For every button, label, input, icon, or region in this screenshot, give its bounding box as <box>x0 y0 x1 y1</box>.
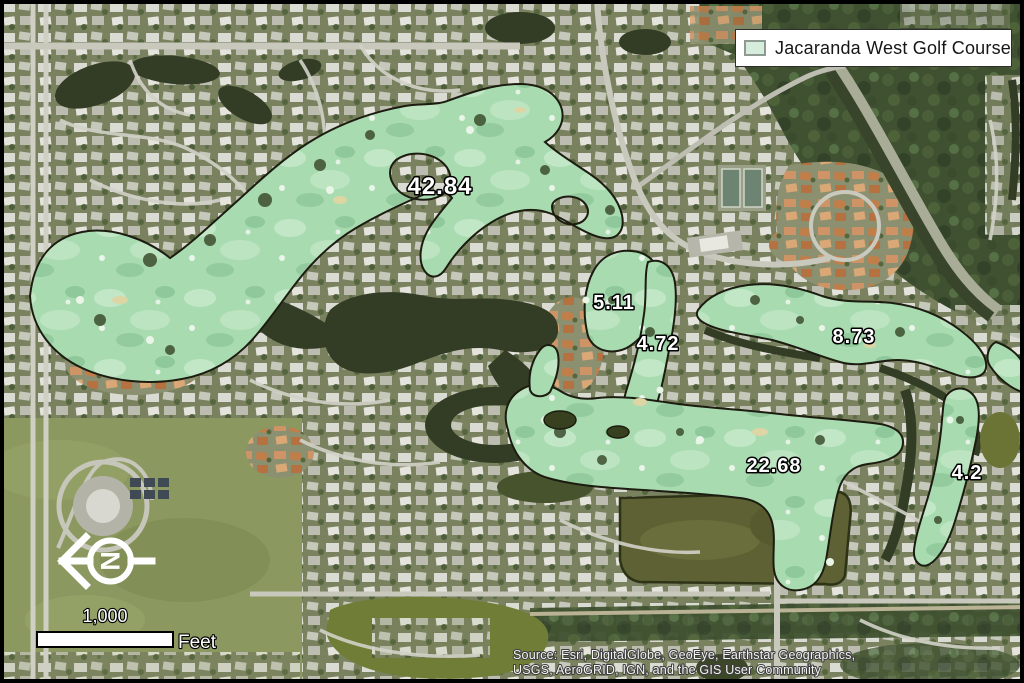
legend-swatch-icon <box>744 40 766 56</box>
area-label-5-11: 5.11 <box>593 292 635 314</box>
scale-bar-rect <box>37 632 173 647</box>
attribution: Source: Esri, DigitalGlobe, GeoEye, Eart… <box>513 648 855 677</box>
scale-unit-label: Feet <box>178 632 217 653</box>
area-label-22-68: 22.68 <box>746 455 801 477</box>
north-arrow-letter: N <box>95 551 125 571</box>
area-label-42-84: 42.84 <box>407 173 472 200</box>
area-label-4-2: 4.2 <box>952 462 983 484</box>
attribution-line-1: Source: Esri, DigitalGlobe, GeoEye, Eart… <box>513 648 855 662</box>
map-canvas: 42.84 5.11 4.72 8.73 22.68 4.2 N 1,000 F… <box>0 0 1024 683</box>
map-export: 42.84 5.11 4.72 8.73 22.68 4.2 N 1,000 F… <box>0 0 1024 683</box>
area-label-4-72: 4.72 <box>637 333 680 355</box>
area-label-8-73: 8.73 <box>833 326 876 348</box>
legend: Jacaranda West Golf Course <box>735 29 1012 67</box>
scale-distance-label: 1,000 <box>82 606 127 626</box>
legend-label: Jacaranda West Golf Course <box>775 38 1011 59</box>
attribution-line-2: USGS, AeroGRID, IGN, and the GIS User Co… <box>513 663 822 677</box>
